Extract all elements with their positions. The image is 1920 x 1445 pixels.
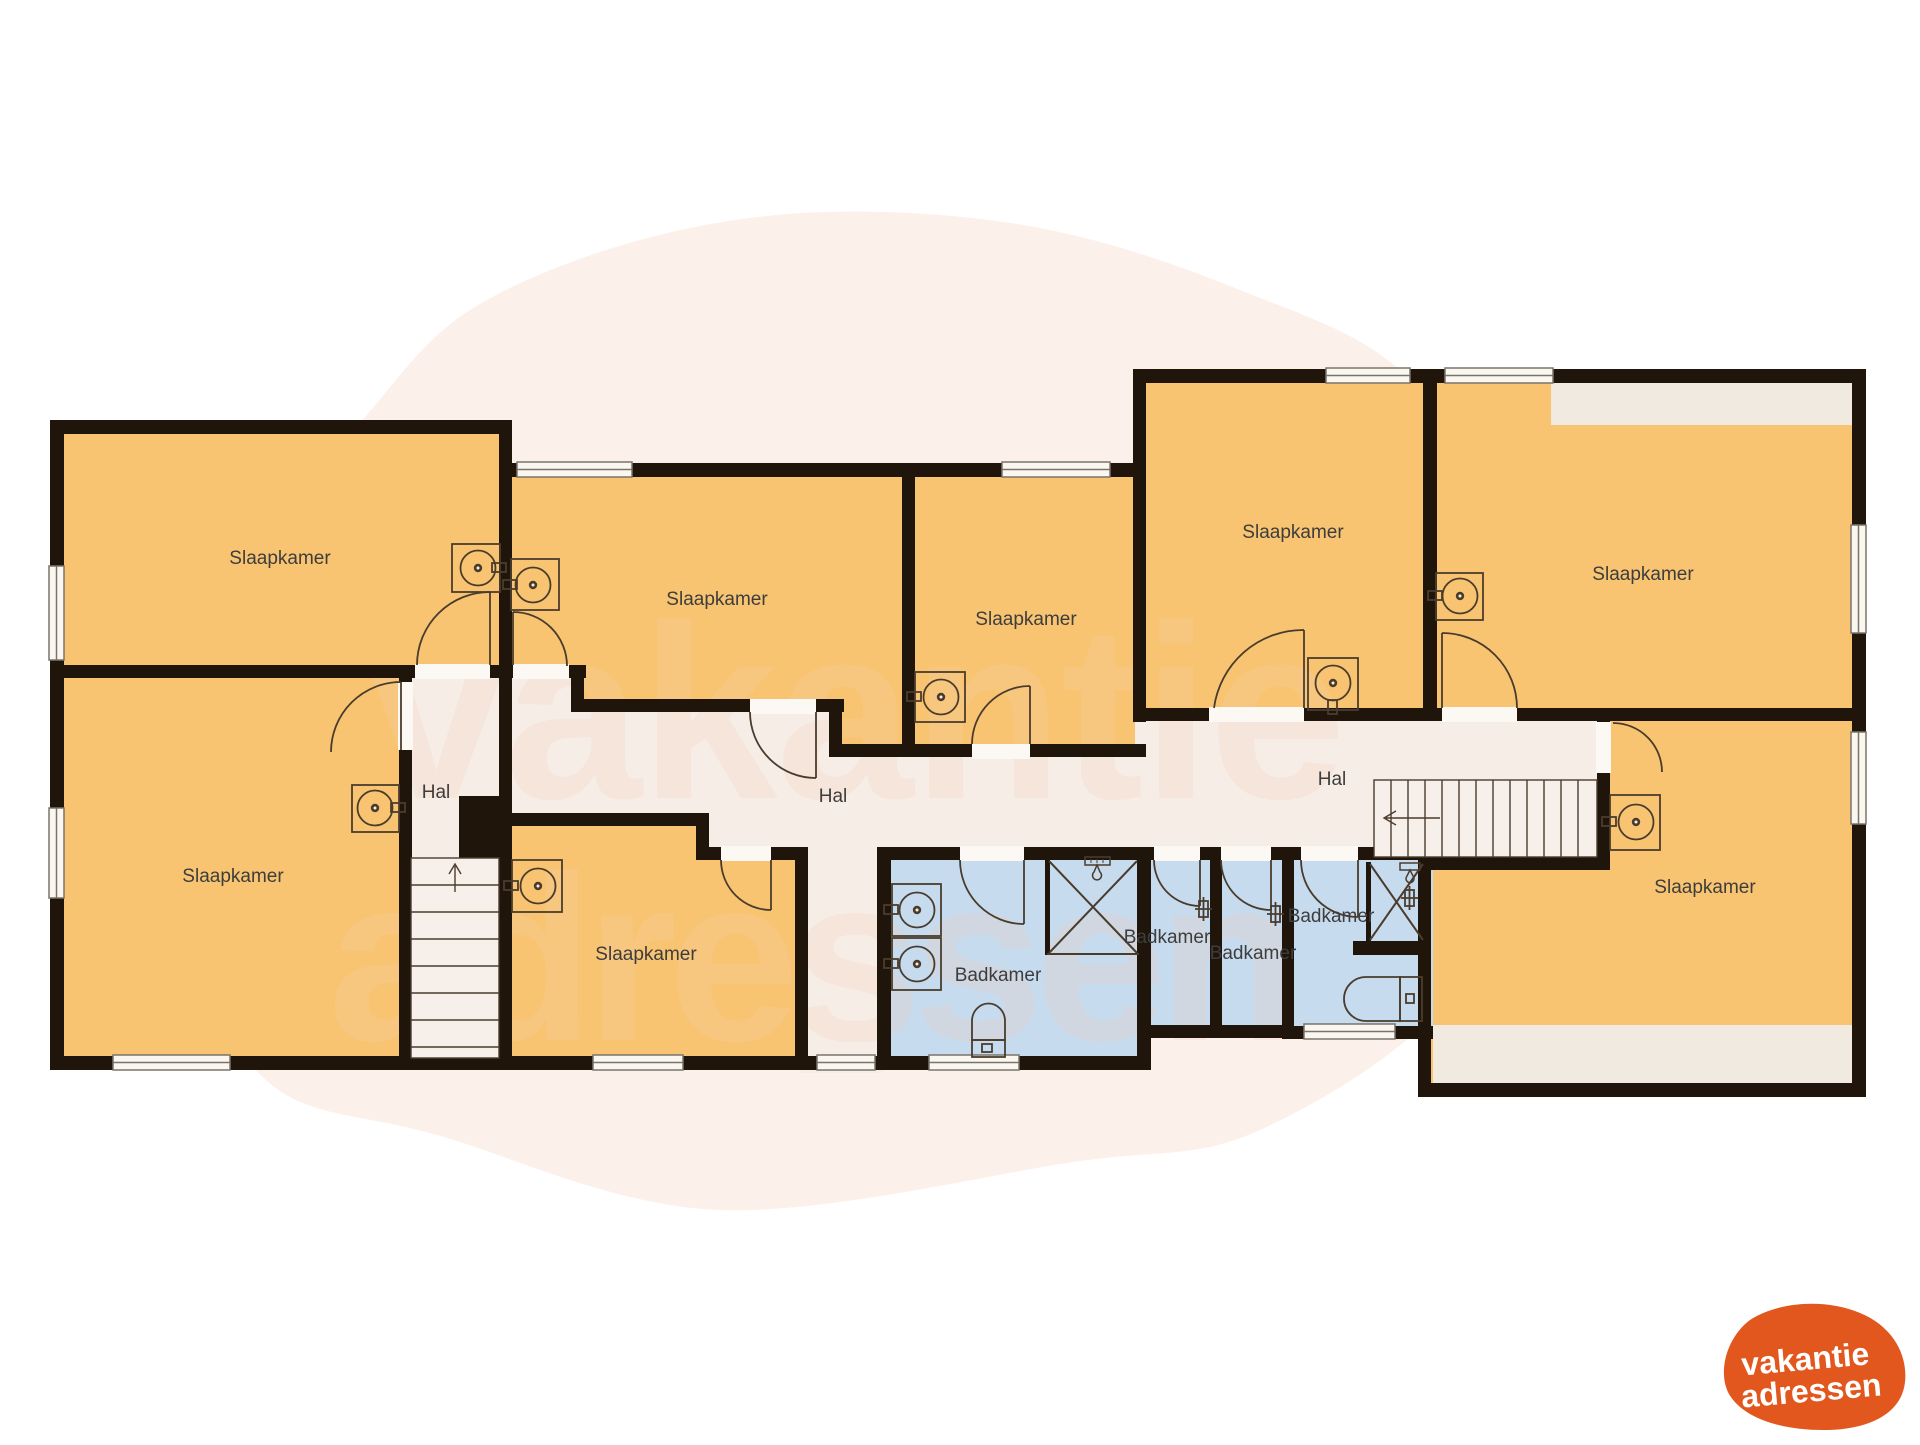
- svg-text:Slaapkamer: Slaapkamer: [975, 609, 1077, 630]
- svg-text:Slaapkamer: Slaapkamer: [595, 944, 697, 965]
- svg-text:Hal: Hal: [422, 782, 451, 803]
- svg-text:Badkamer: Badkamer: [955, 965, 1042, 986]
- svg-text:Slaapkamer: Slaapkamer: [666, 589, 768, 610]
- svg-text:Slaapkamer: Slaapkamer: [1242, 522, 1344, 543]
- svg-text:Hal: Hal: [819, 786, 848, 807]
- svg-text:Slaapkamer: Slaapkamer: [1654, 877, 1756, 898]
- svg-text:Badkamer: Badkamer: [1288, 906, 1375, 927]
- svg-text:Hal: Hal: [1318, 769, 1347, 790]
- svg-text:Slaapkamer: Slaapkamer: [229, 548, 331, 569]
- svg-text:Badkamer: Badkamer: [1124, 927, 1211, 948]
- svg-text:Slaapkamer: Slaapkamer: [182, 866, 284, 887]
- svg-text:Slaapkamer: Slaapkamer: [1592, 564, 1694, 585]
- svg-text:Badkamer: Badkamer: [1210, 943, 1297, 964]
